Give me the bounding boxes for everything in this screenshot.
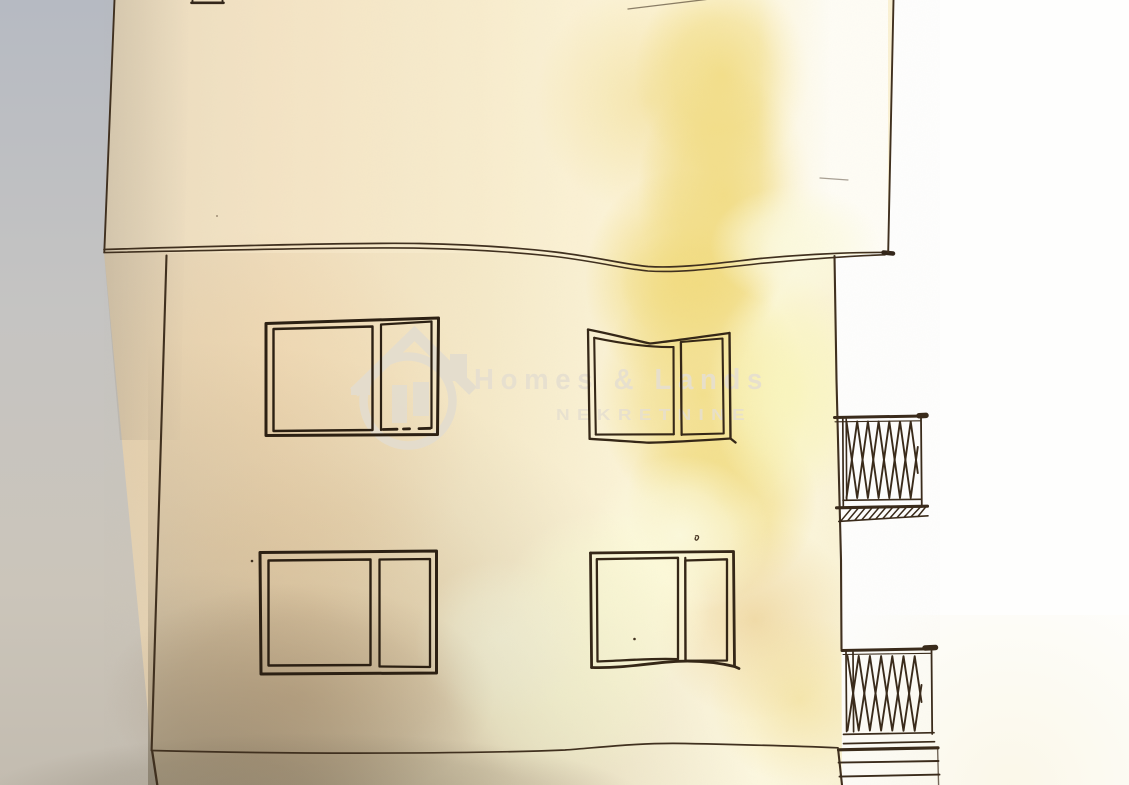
svg-text:Homes & Lands: Homes & Lands xyxy=(474,364,769,396)
